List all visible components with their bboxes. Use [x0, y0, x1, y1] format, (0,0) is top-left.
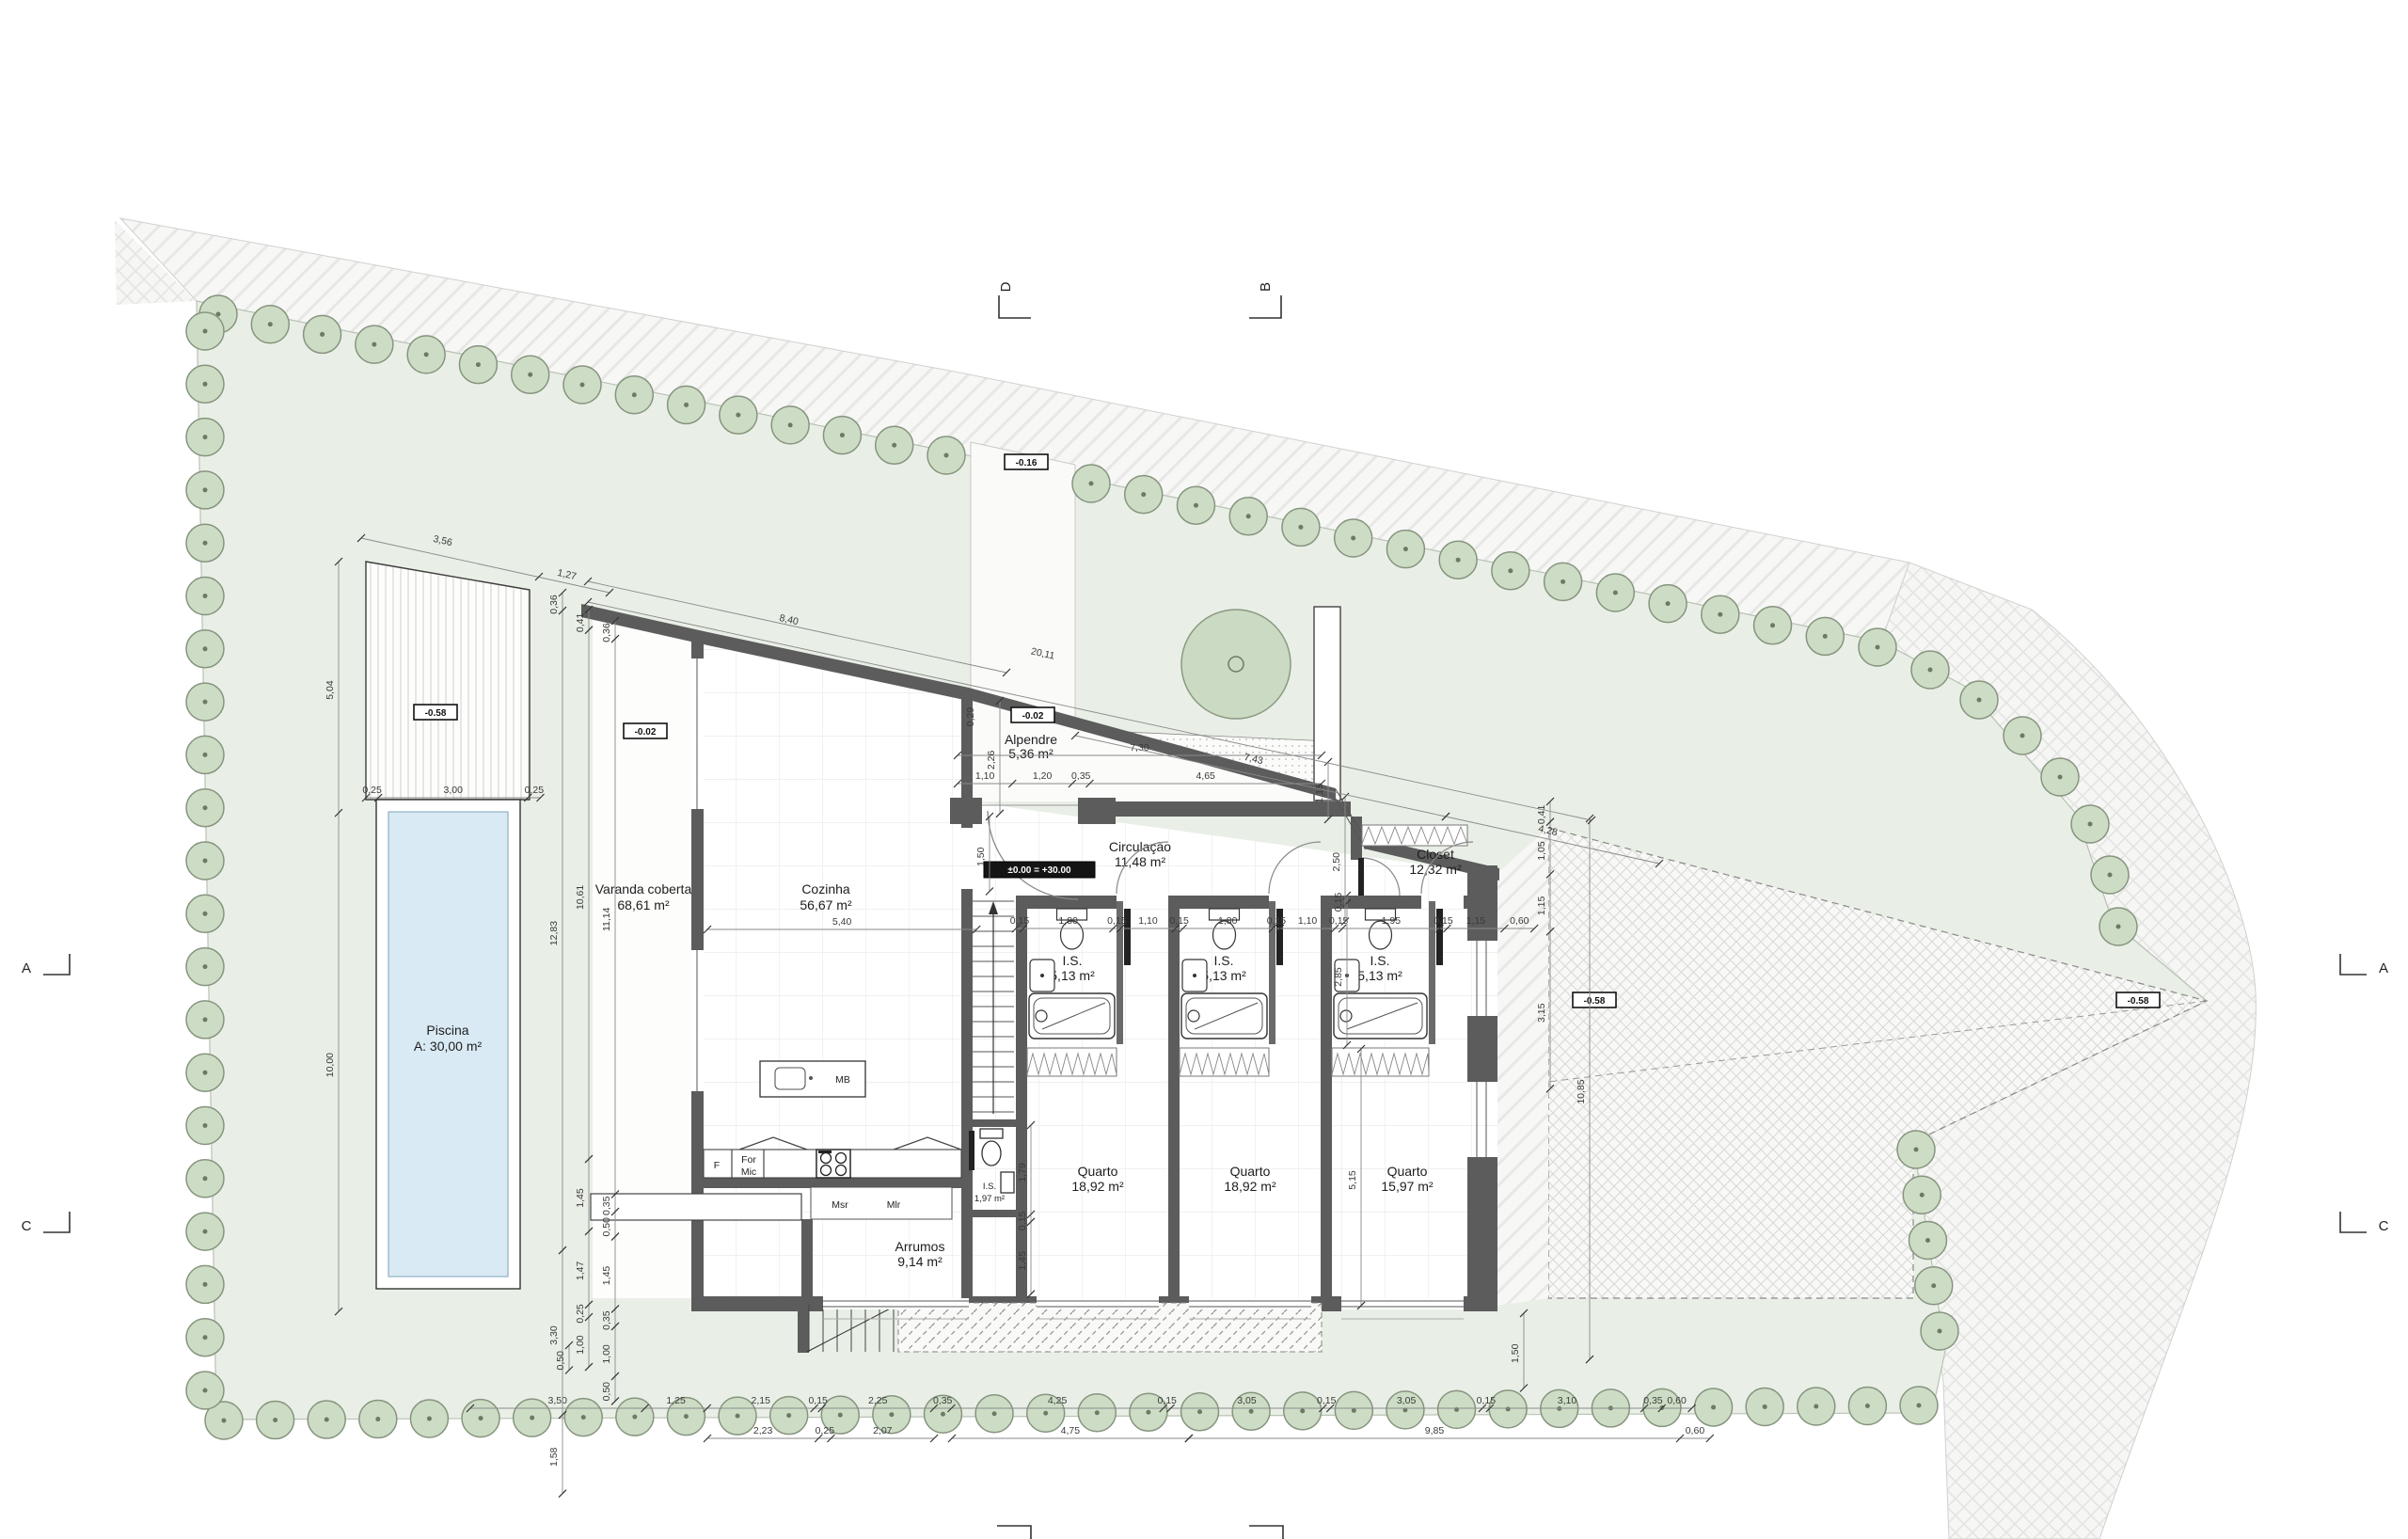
- room-varanda-area: 68,61 m²: [617, 897, 670, 912]
- dimension-label: 1,95: [1382, 915, 1402, 927]
- tree-center-dot: [786, 1413, 791, 1418]
- tree-center-dot: [1814, 1404, 1818, 1408]
- dimension-label: 12,83: [548, 921, 560, 945]
- tree-center-dot: [1666, 601, 1671, 606]
- tree-center-dot: [1560, 579, 1565, 584]
- tree-center-dot: [1914, 1148, 1919, 1152]
- room-alpendre: Alpendre: [1005, 732, 1057, 747]
- laundry: Msr Mlr: [811, 1187, 952, 1219]
- room-is2: I.S.: [1213, 953, 1233, 968]
- dimension-label: 3,30: [548, 1325, 560, 1345]
- tree-center-dot: [1865, 1404, 1870, 1408]
- tree-center-dot: [2108, 873, 2113, 878]
- dimension-label: 10,85: [1576, 1079, 1587, 1103]
- tree-center-dot: [1246, 514, 1251, 518]
- dimension-label: 5,40: [832, 916, 852, 928]
- room-circulacao: Circulação: [1109, 839, 1171, 854]
- dimension-label: 0,36: [601, 623, 612, 643]
- cooktop-icon: [816, 1150, 850, 1178]
- dimension-label: 1,50: [975, 847, 987, 866]
- dimension-label: 5,15: [1347, 1170, 1358, 1190]
- tree-center-dot: [1194, 503, 1198, 508]
- tree-center-dot: [580, 383, 585, 388]
- tree-center-dot: [788, 422, 793, 427]
- closet-door-leaf: [1358, 858, 1364, 896]
- dimension-label: 1,10: [1298, 915, 1318, 927]
- window-gap: [823, 1298, 969, 1309]
- dimension-label: 0,60: [1510, 915, 1529, 927]
- room-arrumos: Arrumos: [895, 1239, 945, 1254]
- dimension-label: 0,25: [525, 785, 545, 796]
- dimension-label: 1,15: [1466, 915, 1486, 927]
- dimension-label: 0,50: [601, 1217, 612, 1237]
- tree-center-dot: [1938, 1329, 1942, 1334]
- dimension-label: 4,75: [1061, 1425, 1081, 1436]
- tree-center-dot: [1823, 634, 1828, 639]
- tree-center-dot: [1876, 645, 1880, 650]
- tree-center-dot: [1613, 591, 1618, 595]
- tree-center-dot: [268, 322, 273, 326]
- window-gap: [1037, 1298, 1159, 1309]
- dimension-label: 1,00: [575, 1335, 586, 1355]
- svg-text:-0.02: -0.02: [1022, 711, 1044, 722]
- tree-center-dot: [203, 1017, 208, 1022]
- tree-center-dot: [1456, 558, 1461, 563]
- dimension-label: 0,35: [1071, 770, 1091, 782]
- dimension-label: 10,61: [575, 885, 586, 910]
- dimension-label: 3,15: [1536, 1003, 1547, 1023]
- section-a-right: A: [2379, 960, 2388, 976]
- dimension-label: 0,50: [555, 1351, 566, 1371]
- room-arrumos-area: 9,14 m²: [897, 1254, 943, 1269]
- section-c-left-bracket: [43, 1212, 70, 1232]
- large-tree-icon: [1181, 610, 1291, 719]
- tree-center-dot: [581, 1415, 586, 1420]
- microwave-label: Mic: [741, 1166, 756, 1178]
- dimension-label: 0,50: [601, 1382, 612, 1402]
- level-deck: -0.58: [414, 705, 457, 720]
- dimension-label: 1,80: [1058, 915, 1078, 927]
- room-circulacao-area: 11,48 m²: [1115, 854, 1166, 869]
- dimension-label: 1,47: [575, 1261, 586, 1280]
- floor-plan-canvas: Piscina A: 30,00 m²: [0, 0, 2408, 1539]
- dimension-label: 1,15: [1536, 896, 1547, 915]
- tree-center-dot: [203, 1071, 208, 1075]
- svg-text:-0.58: -0.58: [425, 708, 447, 719]
- closet-wardrobe: [1362, 825, 1467, 846]
- dimension-label: 2,25: [868, 1395, 888, 1406]
- tree-center-dot: [427, 1417, 432, 1421]
- dimension-label: 1,45: [601, 1266, 612, 1286]
- oven-label: For: [741, 1154, 756, 1166]
- dimension-label: 0,41: [575, 612, 586, 632]
- dimension-label: 1,10: [1138, 915, 1158, 927]
- dimension-label: 0,41: [1536, 804, 1547, 824]
- tree-center-dot: [203, 805, 208, 810]
- room-closet-area: 12,32 m²: [1409, 862, 1462, 877]
- room-is3-area: 5,13 m²: [1357, 968, 1402, 983]
- dimension-label: 0,25: [362, 785, 382, 796]
- tree-center-dot: [1925, 1238, 1930, 1243]
- tree-center-dot: [632, 392, 637, 397]
- dimension-label: 1,79: [1017, 1163, 1028, 1182]
- tree-center-dot: [1928, 668, 1933, 673]
- tree-center-dot: [889, 1412, 894, 1417]
- room-quarto1-area: 18,92 m²: [1071, 1179, 1124, 1194]
- bathtub-icon: [1181, 993, 1267, 1039]
- section-d-bottom-bracket: [997, 1526, 1031, 1539]
- dimension-label: 2,50: [1331, 852, 1342, 872]
- room-cozinha: Cozinha: [801, 881, 850, 896]
- tree-center-dot: [375, 1417, 380, 1421]
- tree-center-dot: [1917, 1404, 1922, 1408]
- tree-center-dot: [530, 1416, 534, 1420]
- tree-center-dot: [372, 342, 376, 347]
- pool-area: Piscina A: 30,00 m²: [366, 562, 530, 1289]
- dimension-label: 0,60: [1667, 1395, 1687, 1406]
- tree-center-dot: [203, 435, 208, 439]
- section-b-bottom-bracket: [1249, 1526, 1283, 1539]
- room-quarto3-area: 15,97 m²: [1381, 1179, 1434, 1194]
- dimension-label: 9,85: [1425, 1425, 1445, 1436]
- tree-center-dot: [203, 1230, 208, 1234]
- dryer-label: Msr: [832, 1199, 848, 1211]
- sink-drain: [1040, 974, 1044, 977]
- tree-center-dot: [736, 1414, 740, 1419]
- tree-center-dot: [1977, 698, 1982, 703]
- dimension-label: 2,26: [986, 751, 997, 770]
- service-wc-label: I.S.: [983, 1182, 996, 1192]
- level-varanda: -0.02: [624, 723, 667, 738]
- tree-center-dot: [1506, 1406, 1511, 1411]
- tree-center-dot: [203, 964, 208, 969]
- dimension-label: 0,36: [548, 595, 560, 614]
- fridge-label: F: [714, 1160, 720, 1171]
- section-d-top: D: [998, 281, 1014, 292]
- window-gap: [1189, 1298, 1311, 1309]
- dimension-label: 0,35: [601, 1196, 612, 1215]
- tree-center-dot: [203, 753, 208, 757]
- tree-center-dot: [203, 912, 208, 916]
- tree-center-dot: [736, 413, 740, 418]
- room-is1-area: 5,13 m²: [1050, 968, 1095, 983]
- dimension-label: 1,20: [1033, 770, 1053, 782]
- tree-center-dot: [203, 700, 208, 705]
- dimension-label: 1,15: [1314, 784, 1325, 803]
- dimension-label: 3,05: [1397, 1395, 1417, 1406]
- room-quarto1: Quarto: [1078, 1164, 1118, 1179]
- tree-center-dot: [203, 1388, 208, 1393]
- room-alpendre-area: 5,36 m²: [1008, 746, 1053, 761]
- tree-center-dot: [203, 859, 208, 864]
- tree-center-dot: [1141, 492, 1146, 497]
- section-b-top-bracket: [1249, 295, 1281, 318]
- bench: [591, 1194, 801, 1220]
- dimension-label: 11,14: [601, 907, 612, 931]
- tree-center-dot: [1197, 1409, 1202, 1414]
- tree-center-dot: [2116, 925, 2121, 929]
- tree-center-dot: [222, 1419, 227, 1423]
- level-boundary: -0.58: [2116, 992, 2160, 1007]
- bathtub-icon: [1334, 993, 1427, 1039]
- tree-center-dot: [1298, 525, 1303, 530]
- dimension-label: 0,15: [1333, 893, 1344, 912]
- dimension-label: 3,50: [548, 1395, 568, 1406]
- room-closet: Closet: [1417, 847, 1454, 862]
- section-a-left-bracket: [43, 954, 70, 975]
- island-label: MB: [835, 1074, 850, 1086]
- tree-center-dot: [1508, 568, 1513, 573]
- level-entrance: ±0.00 = +30.00: [984, 862, 1095, 878]
- tree-center-dot: [1403, 547, 1408, 551]
- dimension-label: 1,45: [1017, 1251, 1028, 1271]
- section-a-left: A: [22, 960, 31, 976]
- tree-center-dot: [203, 646, 208, 651]
- tree-center-dot: [1920, 1193, 1925, 1198]
- level-alpendre: -0.02: [1011, 707, 1054, 722]
- service-wc-area: 1,97 m²: [974, 1194, 1005, 1204]
- section-a-right-bracket: [2340, 954, 2367, 975]
- tree-center-dot: [203, 1123, 208, 1128]
- tree-center-dot: [892, 443, 896, 448]
- svg-text:-0.16: -0.16: [1016, 458, 1038, 468]
- tree-center-dot: [944, 453, 949, 458]
- tree-center-dot: [203, 1176, 208, 1181]
- tree-center-dot: [2088, 822, 2093, 827]
- tree-center-dot: [2058, 775, 2063, 780]
- pool-label: Piscina: [426, 1023, 468, 1038]
- dimension-label: 3,00: [444, 785, 464, 796]
- tree-center-dot: [684, 1414, 689, 1419]
- dimension-label: 1,50: [1510, 1343, 1521, 1363]
- section-c-right: C: [2379, 1218, 2389, 1234]
- svg-text:-0.02: -0.02: [635, 727, 657, 738]
- room-varanda: Varanda coberta: [595, 881, 692, 896]
- level-driveway: -0.16: [1005, 454, 1048, 469]
- room-is2-area: 5,13 m²: [1201, 968, 1246, 983]
- room-cozinha-area: 56,67 m²: [800, 897, 852, 912]
- tree-center-dot: [203, 329, 208, 334]
- tree-center-dot: [320, 332, 325, 337]
- tree-center-dot: [203, 594, 208, 598]
- tree-center-dot: [1352, 1408, 1356, 1413]
- dimension-label: 2,85: [1333, 967, 1344, 987]
- tree-center-dot: [273, 1418, 277, 1422]
- dimension-label: 1,10: [975, 770, 995, 782]
- dimension-label: 1,00: [601, 1344, 612, 1364]
- dimension-label: 1,05: [1536, 841, 1547, 861]
- svg-text:-0.58: -0.58: [2128, 996, 2149, 1007]
- tree-center-dot: [203, 1282, 208, 1287]
- tree-center-dot: [941, 1412, 945, 1417]
- tree-center-dot: [1770, 623, 1775, 627]
- dimension-label: 10,00: [325, 1053, 336, 1077]
- sink-drain: [1193, 974, 1196, 977]
- level-patio: -0.58: [1573, 992, 1616, 1007]
- tree-center-dot: [1043, 1411, 1048, 1416]
- svg-text:-0.58: -0.58: [1584, 996, 1606, 1007]
- dimension-label: 0,15: [1017, 1211, 1028, 1230]
- tree-center-dot: [203, 1335, 208, 1340]
- tree-center-dot: [203, 541, 208, 546]
- tree-center-dot: [528, 373, 532, 377]
- svg-text:±0.00 = +30.00: ±0.00 = +30.00: [1007, 865, 1071, 876]
- dimension-label: 3,05: [1237, 1395, 1257, 1406]
- tree-center-dot: [2020, 734, 2025, 738]
- tree-center-dot: [1089, 482, 1094, 486]
- dimension-label: 2,23: [753, 1425, 773, 1436]
- tree-center-dot: [1351, 536, 1355, 541]
- tree-center-dot: [1718, 612, 1722, 617]
- tree-center-dot: [424, 352, 429, 357]
- tree-center-dot: [476, 362, 481, 367]
- dimension-label: 4,65: [1196, 770, 1215, 782]
- dimension-label: 0,35: [933, 1395, 953, 1406]
- tree-center-dot: [1711, 1404, 1716, 1409]
- dimension-label: 0,25: [816, 1425, 835, 1436]
- dimension-label: 2,07: [873, 1425, 893, 1436]
- dimension-label: 1,25: [666, 1395, 686, 1406]
- dimension-label: 3,10: [1558, 1395, 1577, 1406]
- tree-center-dot: [992, 1411, 997, 1416]
- section-d-top-bracket: [999, 295, 1031, 318]
- tree-center-dot: [1095, 1410, 1100, 1415]
- room-quarto2: Quarto: [1230, 1164, 1271, 1179]
- tree-center-dot: [840, 433, 845, 437]
- section-b-top: B: [1258, 282, 1274, 292]
- tree-center-dot: [1146, 1410, 1150, 1415]
- room-quarto2-area: 18,92 m²: [1224, 1179, 1276, 1194]
- fin-wall: [1314, 607, 1340, 801]
- section-c-left: C: [22, 1218, 32, 1234]
- kitchen-island: MB: [760, 1061, 865, 1097]
- dimension-label: 2,15: [752, 1395, 771, 1406]
- dimension-label: 4,25: [1048, 1395, 1068, 1406]
- dimension-label: 0,29: [965, 707, 976, 727]
- room-is3: I.S.: [1370, 953, 1389, 968]
- tree-center-dot: [1300, 1408, 1305, 1413]
- pool-area-label: A: 30,00 m²: [414, 1039, 483, 1054]
- tree-center-dot: [1249, 1409, 1254, 1414]
- dimension-label: 0,25: [575, 1304, 586, 1324]
- room-quarto3: Quarto: [1387, 1164, 1428, 1179]
- pool-deck: [366, 562, 530, 800]
- tree-center-dot: [632, 1415, 637, 1420]
- tree-center-dot: [1763, 1404, 1767, 1409]
- tree-center-dot: [203, 487, 208, 492]
- tree-center-dot: [203, 382, 208, 387]
- dimension-label: 0,60: [1686, 1425, 1705, 1436]
- dimension-label: 1,80: [1218, 915, 1238, 927]
- tree-center-dot: [325, 1418, 329, 1422]
- tree-center-dot: [684, 403, 689, 407]
- dimension-label: 1,58: [548, 1447, 560, 1467]
- lower-deck-hatch: [898, 1303, 1322, 1352]
- dimension-label: 0,35: [601, 1310, 612, 1330]
- bathtub-icon: [1029, 993, 1115, 1039]
- section-c-right-bracket: [2340, 1212, 2367, 1232]
- washer-label: Mlr: [887, 1199, 901, 1211]
- dimension-label: 0,35: [1643, 1395, 1663, 1406]
- tree-center-dot: [479, 1416, 483, 1420]
- dimension-label: 5,04: [325, 680, 336, 700]
- tree-center-dot: [1931, 1283, 1936, 1288]
- tree-center-dot: [838, 1413, 843, 1418]
- dimension-label: 1,45: [575, 1188, 586, 1208]
- room-is1: I.S.: [1062, 953, 1082, 968]
